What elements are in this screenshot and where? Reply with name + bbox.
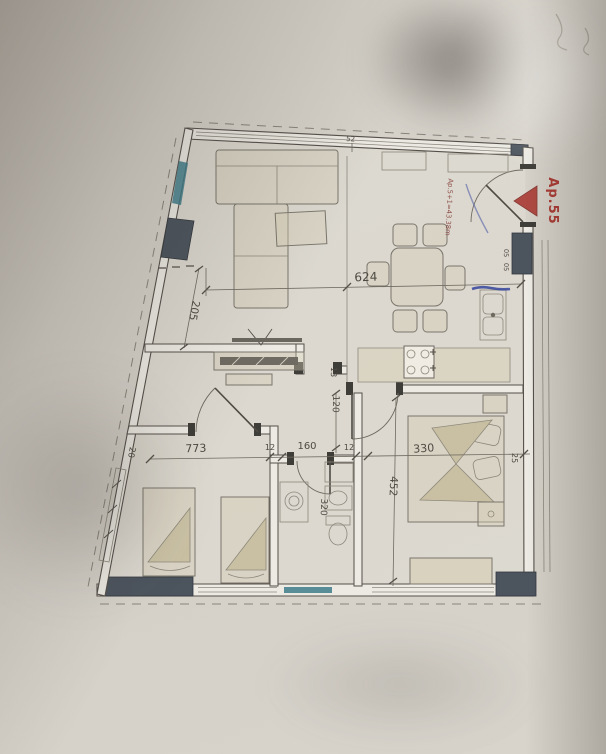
sink-faucet (491, 313, 495, 317)
dim-bed2-depth: 452 (386, 476, 399, 497)
tv-panel (232, 338, 302, 342)
dining-chair-3 (393, 310, 417, 332)
dining-chair-2 (423, 224, 447, 246)
jamb-bed2-2 (396, 382, 403, 395)
handwriting-mark (556, 14, 589, 55)
dim-top-small: 52 (346, 135, 355, 143)
dresser (410, 558, 492, 584)
dim-bath-depth: 320 (318, 498, 329, 516)
pillar-bottom-left (103, 577, 193, 596)
jamb-bed1-1 (188, 423, 195, 436)
dining-chair-6 (445, 266, 465, 290)
apartment-label: Ap.55 (545, 177, 560, 224)
dim-wall-b: 12 (344, 443, 354, 452)
dim-bath-width: 160 (297, 441, 316, 452)
nightstand-1 (483, 395, 507, 413)
pillar-kitchen-right (512, 233, 532, 274)
dim-hall-wall: 13 (329, 367, 338, 377)
wall-kitchen-bed2-b (398, 385, 523, 393)
floorplan-photo: 624 52 205 20 773 12 160 12 330 25 452 3… (0, 0, 606, 754)
wall-bed1-top-a (127, 426, 190, 434)
wall-living-hall (145, 344, 300, 352)
wall-right-lower (523, 224, 534, 594)
entrance-jamb-top (520, 164, 536, 169)
dim-left-small: 20 (125, 446, 137, 458)
coffee-table (275, 211, 327, 247)
dim-hall-corridor: 120 (330, 395, 341, 413)
window-bath-teal (284, 587, 332, 593)
wall-bath-bed2 (354, 393, 362, 586)
jamb-bath-1 (287, 452, 294, 465)
entrance-jamb-bottom (520, 222, 536, 227)
floorplan-drawing: 624 52 205 20 773 12 160 12 330 25 452 3… (0, 0, 606, 754)
dim-room1-width: 773 (185, 442, 206, 456)
dim-right-small: 25 (510, 453, 519, 463)
dim-wall-a: 12 (265, 443, 275, 452)
facade-line-1 (542, 240, 544, 572)
facade-line-2 (548, 240, 550, 572)
dining-chair-1 (393, 224, 417, 246)
dim-top-width: 624 (354, 270, 377, 285)
dim-bed2-width: 330 (413, 441, 435, 455)
dining-chair-4 (423, 310, 447, 332)
dining-table (391, 248, 443, 306)
dim-wall-small-2: 05 (502, 263, 510, 272)
pillar-bottom-right (496, 572, 536, 596)
shoe-cabinet (226, 374, 272, 385)
nightstand-2 (478, 502, 504, 526)
dim-wall-small-1: 05 (502, 249, 510, 258)
